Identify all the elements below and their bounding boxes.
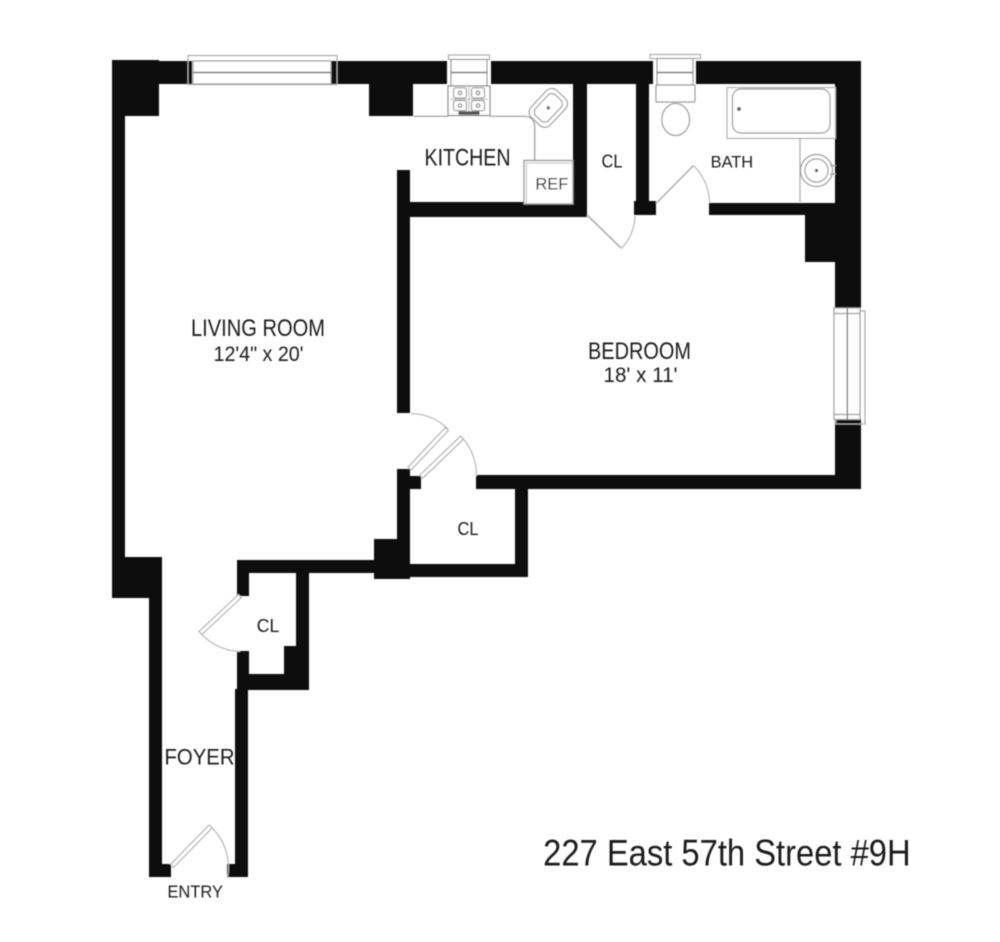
svg-text:CL: CL (602, 152, 623, 172)
svg-text:BEDROOM: BEDROOM (588, 338, 691, 365)
svg-text:REF: REF (535, 175, 568, 194)
svg-text:CL: CL (458, 519, 479, 539)
svg-text:FOYER: FOYER (165, 745, 235, 770)
svg-text:227 East 57th Street #9H: 227 East 57th Street #9H (543, 832, 911, 874)
svg-text:BATH: BATH (711, 154, 754, 172)
svg-text:18' x 11': 18' x 11' (604, 364, 678, 387)
svg-text:CL: CL (257, 615, 280, 636)
svg-text:KITCHEN: KITCHEN (425, 145, 511, 172)
svg-text:LIVING ROOM: LIVING ROOM (191, 315, 325, 342)
svg-text:12'4" x 20': 12'4" x 20' (214, 343, 304, 366)
svg-text:ENTRY: ENTRY (167, 882, 223, 902)
